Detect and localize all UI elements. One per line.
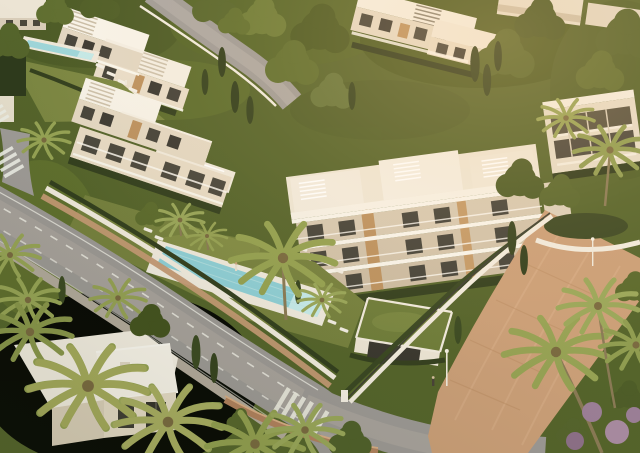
sunlight-overlay bbox=[0, 0, 640, 453]
render-image bbox=[0, 0, 640, 453]
